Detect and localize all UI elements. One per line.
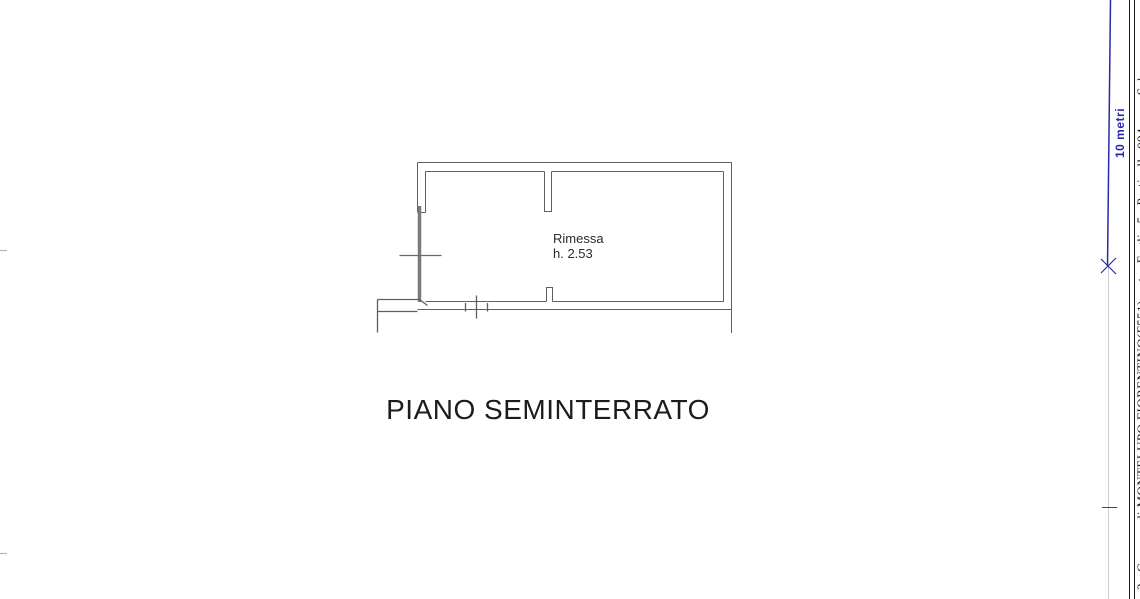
scale-bar-label: 10 metri	[1113, 108, 1127, 158]
room-height-label: h. 2.53	[553, 246, 593, 261]
cadastral-floor-plan-page: Rimessa h. 2.53 PIANO SEMINTERRATO 10 me…	[0, 0, 1140, 599]
cadastral-margin-text: 2 Comune di MONTELUPO FIORENTINO(F551) <…	[1134, 74, 1140, 590]
extension-upper-edge	[378, 300, 428, 306]
floor-title: PIANO SEMINTERRATO	[386, 394, 710, 425]
floor-plan-drawing: Rimessa h. 2.53 PIANO SEMINTERRATO	[0, 0, 1140, 599]
scale-bar-line	[1108, 0, 1111, 266]
scale-bar	[1101, 0, 1117, 599]
room-name-label: Rimessa	[553, 231, 604, 246]
top-partition-stub	[545, 172, 552, 212]
bottom-partition-stub	[547, 288, 553, 302]
left-edge-fold-marks	[0, 251, 7, 554]
left-thick-wall	[400, 206, 442, 302]
